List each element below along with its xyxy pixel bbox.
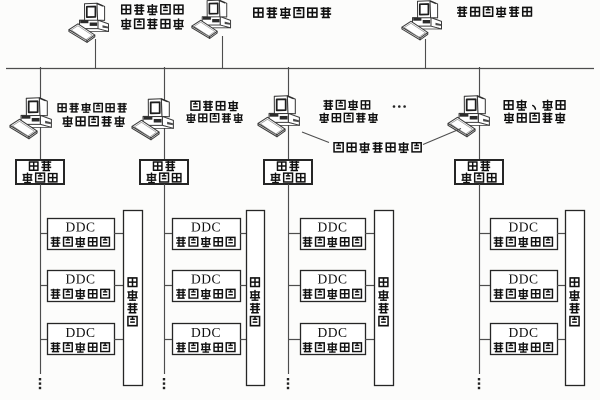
svg-text:DDC: DDC — [65, 220, 95, 235]
svg-text:DDC: DDC — [191, 272, 221, 287]
svg-text:DDC: DDC — [508, 325, 538, 340]
svg-text:DDC: DDC — [65, 325, 95, 340]
svg-text:DDC: DDC — [65, 272, 95, 287]
svg-text:DDC: DDC — [317, 272, 347, 287]
svg-text:DDC: DDC — [317, 325, 347, 340]
svg-text:DDC: DDC — [317, 220, 347, 235]
svg-text:DDC: DDC — [508, 220, 538, 235]
svg-text:DDC: DDC — [508, 272, 538, 287]
svg-text:DDC: DDC — [191, 220, 221, 235]
svg-text:DDC: DDC — [191, 325, 221, 340]
